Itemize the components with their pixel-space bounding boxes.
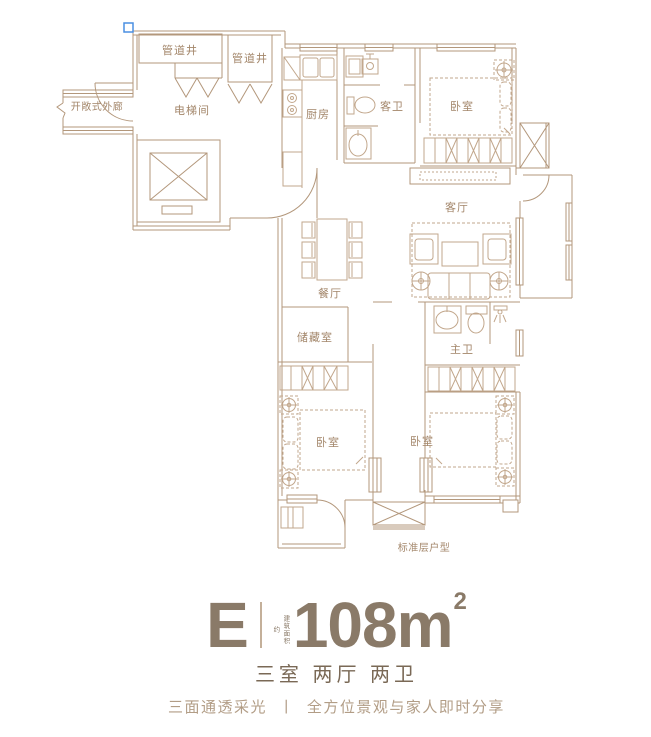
tagline-right: 全方位景观与家人即时分享 [307, 699, 505, 716]
elevator-shaft-symbol [137, 140, 220, 222]
room-label-bedroom-top-right: 卧室 [450, 99, 474, 113]
master-bath-fixtures [434, 306, 507, 333]
area-value: 108 [293, 602, 397, 648]
plan-caption: 标准层户型 [398, 541, 451, 554]
living-room-furniture [410, 223, 511, 299]
room-label-pipe-shaft-1: 管道井 [162, 43, 198, 57]
area-prefix: 建筑面积约 [270, 614, 290, 646]
headline-divider [260, 602, 262, 648]
tagline: 三面通透采光 丨 全方位景观与家人即时分享 [11, 696, 651, 717]
pipe-shaft-1-symbol [139, 34, 222, 97]
room-label-pipe-shaft-2: 管道井 [232, 51, 268, 65]
bedroom-bottom-left-furniture [280, 366, 365, 488]
tagline-left: 三面通透采光 [168, 699, 267, 716]
floorplan-page: 管道井 管道井 开敞式外廊 电梯间 厨房 客卫 卧室 客厅 餐厅 储藏室 主卫 … [0, 0, 651, 737]
area-superscript: 2 [454, 588, 467, 616]
room-label-bedroom-bottom-left: 卧室 [316, 435, 340, 449]
tagline-divider: 丨 [279, 699, 296, 716]
room-label-storage: 储藏室 [297, 330, 333, 344]
title-block: E 建筑面积约 108 m 2 三室 两厅 两卫 三面通透采光 丨 全方位景观与… [11, 596, 651, 717]
floor-plan-drawing: 管道井 管道井 开敞式外廊 电梯间 厨房 客卫 卧室 客厅 餐厅 储藏室 主卫 … [0, 0, 651, 580]
unit-area-headline: E 建筑面积约 108 m 2 [11, 596, 651, 648]
rooms-summary: 三室 两厅 两卫 [11, 658, 651, 687]
room-label-guest-bath: 客卫 [380, 99, 404, 113]
balcony-fixtures [281, 507, 303, 528]
room-label-master-bath: 主卫 [450, 343, 474, 356]
duct-top-right-symbol [520, 123, 549, 168]
dining-table-set [302, 219, 362, 280]
selection-handle [124, 23, 133, 32]
unit-name: E [206, 602, 248, 648]
room-label-kitchen: 厨房 [306, 108, 330, 121]
bedroom-bottom-middle-furniture [428, 367, 515, 486]
room-label-elevator-hall: 电梯间 [174, 104, 210, 117]
room-label-dining-room: 餐厅 [318, 286, 342, 300]
area-unit: m [397, 602, 454, 648]
room-label-bedroom-bottom-middle: 卧室 [410, 434, 434, 448]
room-label-open-corridor: 开敞式外廊 [71, 100, 124, 113]
kitchen-fixtures [283, 55, 337, 188]
guest-bath-fixtures [346, 54, 378, 159]
pipe-shaft-2-symbol [228, 35, 272, 103]
room-label-living-room: 客厅 [445, 200, 469, 214]
duct-bottom-symbol [373, 502, 425, 529]
